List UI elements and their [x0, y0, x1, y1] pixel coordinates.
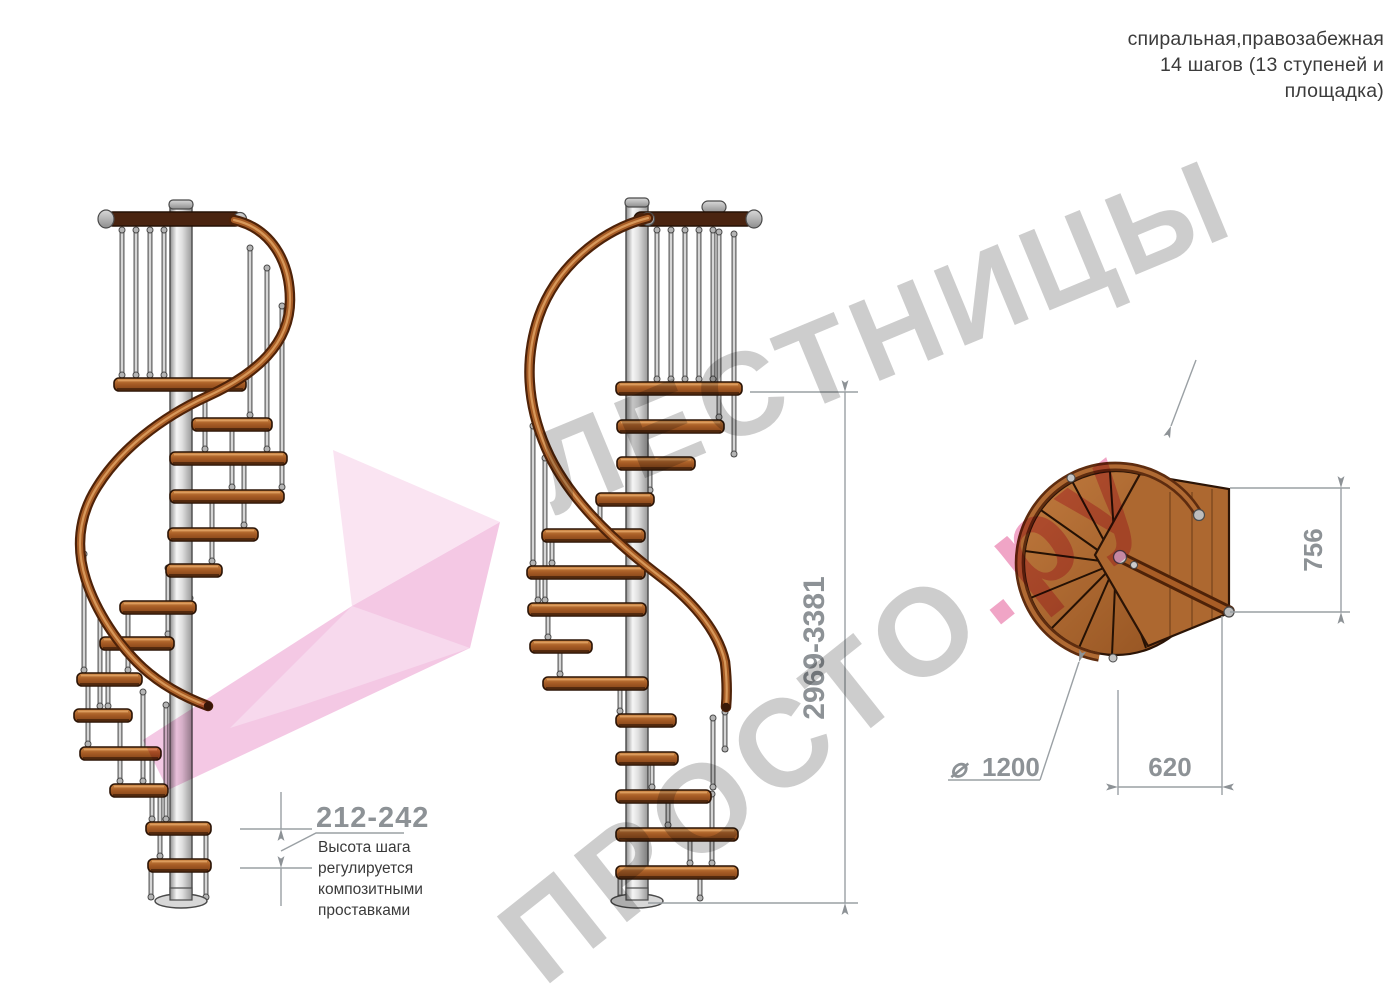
side-view-staircase-left: [74, 200, 290, 908]
step-height-dimension-label: 212-242: [316, 802, 429, 834]
title-line3: площадка): [1128, 78, 1384, 104]
title-caption: спиральная,правозабежная 14 шагов (13 ст…: [1128, 26, 1384, 104]
drawing-page: 2969-3381 212-242 Высота шага регулирует…: [0, 0, 1400, 1000]
step-height-note-line1: Высота шага: [318, 839, 411, 856]
plan-depth-dimension-label: 756: [1298, 528, 1328, 571]
step-height-note-line2: регулируется: [318, 860, 413, 877]
step-height-note-line3: композитными: [318, 881, 423, 898]
title-line2: 14 шагов (13 ступеней и: [1128, 52, 1384, 78]
step-height-note-line4: проставками: [318, 902, 410, 919]
diameter-symbol: ⌀: [950, 753, 970, 783]
plan-width-dimension-label: 620: [1148, 752, 1191, 782]
title-line1: спиральная,правозабежная: [1128, 26, 1384, 52]
plan-rail-ball: [1194, 510, 1205, 521]
plan-diameter-dimension-label: 1200: [982, 752, 1040, 782]
